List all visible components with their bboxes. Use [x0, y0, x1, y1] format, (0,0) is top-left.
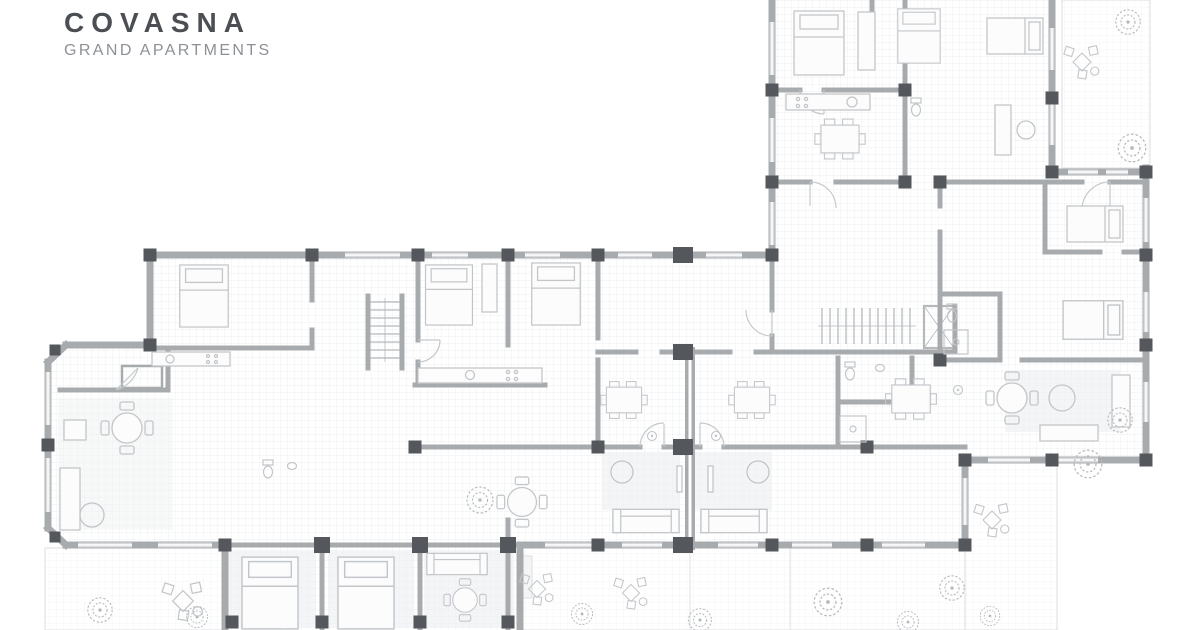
dining-table-icon [601, 382, 647, 419]
tv-icon [708, 466, 713, 492]
terrace [1062, 0, 1150, 168]
terrace [965, 462, 1057, 630]
tv-icon [677, 466, 682, 492]
armchair-icon [64, 420, 86, 440]
bed-icon [898, 9, 940, 63]
floorplan-page: COVASNA GRAND APARTMENTS [0, 0, 1200, 630]
wardrobe-icon [858, 12, 875, 70]
kitchen-counter-icon [786, 94, 870, 110]
sofa-icon [701, 509, 767, 532]
bed-icon [987, 18, 1043, 54]
bed-icon [180, 265, 228, 327]
sofa-icon [427, 553, 487, 574]
bed-icon [532, 263, 580, 325]
wardrobe-icon [482, 264, 497, 312]
bed-icon [338, 557, 394, 629]
kitchen-counter-icon [418, 368, 542, 383]
bed-icon [1067, 206, 1123, 242]
dining-table-icon [729, 382, 775, 419]
sofa-icon [613, 509, 679, 532]
dining-table-icon [815, 119, 865, 159]
sofa-icon [995, 105, 1011, 155]
bed-icon [794, 11, 844, 75]
bed-icon [242, 557, 298, 629]
sofa-icon [1040, 425, 1098, 441]
kitchen-counter-icon [152, 352, 230, 366]
bed-icon [1063, 301, 1123, 339]
dining-table-icon [886, 379, 937, 419]
bed-icon [426, 265, 473, 325]
floor-plan-drawing [0, 0, 1200, 630]
sofa-icon [60, 468, 80, 530]
